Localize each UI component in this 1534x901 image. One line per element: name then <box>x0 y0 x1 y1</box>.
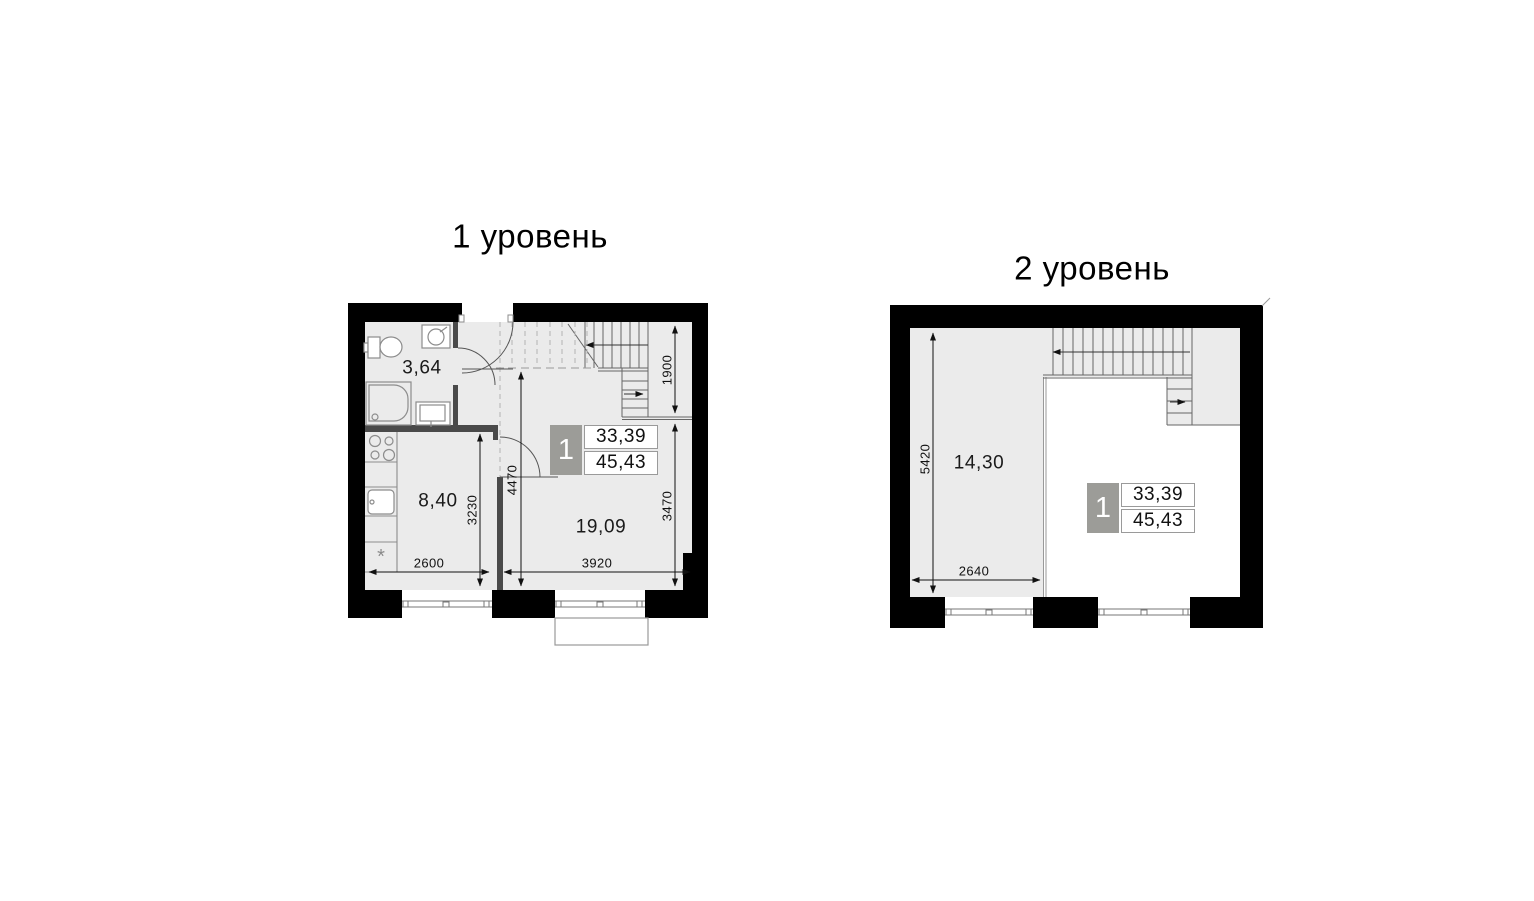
kitchen-sink-symbol <box>368 490 394 514</box>
level-2-title: 2 уровень <box>1014 252 1170 285</box>
dim-living-width-label: 3920 <box>582 557 613 570</box>
living-area-value: 33,39 <box>584 425 658 449</box>
entrance-threshold <box>459 315 513 322</box>
apartment-number: 1 <box>550 425 582 475</box>
dim-stair-depth-label: 1900 <box>661 355 674 386</box>
apartment-number: 1 <box>1087 483 1119 533</box>
dim-hall-depth-label: 4470 <box>506 465 519 496</box>
living-area-value: 33,39 <box>1121 483 1195 507</box>
total-area-value: 45,43 <box>584 451 658 475</box>
total-area-value: 45,43 <box>1121 509 1195 533</box>
level2-plan <box>890 298 1270 628</box>
level2-room-area-label: 14,30 <box>954 454 1005 473</box>
dim-room-width-label: 2640 <box>959 565 990 578</box>
kitchen-area-label: 8,40 <box>418 492 457 511</box>
bathroom-sink-symbol <box>416 402 450 427</box>
apartment-badge-level2: 1 33,39 45,43 <box>1087 483 1195 533</box>
floorplan-canvas: 1 уровень 2 уровень 3,64 8,40 19,09 14,3… <box>0 0 1534 901</box>
balcony-outline <box>555 618 648 645</box>
floorplan-linework <box>0 0 1534 901</box>
apartment-badge-level1: 1 33,39 45,43 <box>550 425 658 475</box>
washing-machine-symbol <box>422 325 450 348</box>
bathroom-area-label: 3,64 <box>402 359 441 378</box>
dim-room-depth-label: 5420 <box>919 444 932 475</box>
living-room-area-label: 19,09 <box>576 518 627 537</box>
dim-living-depth-label: 3470 <box>661 491 674 522</box>
fridge-symbol: * <box>377 547 385 567</box>
level-1-title: 1 уровень <box>452 220 608 253</box>
dim-kitchen-width-label: 2600 <box>414 557 445 570</box>
dim-kitchen-depth-label: 3230 <box>466 495 479 526</box>
